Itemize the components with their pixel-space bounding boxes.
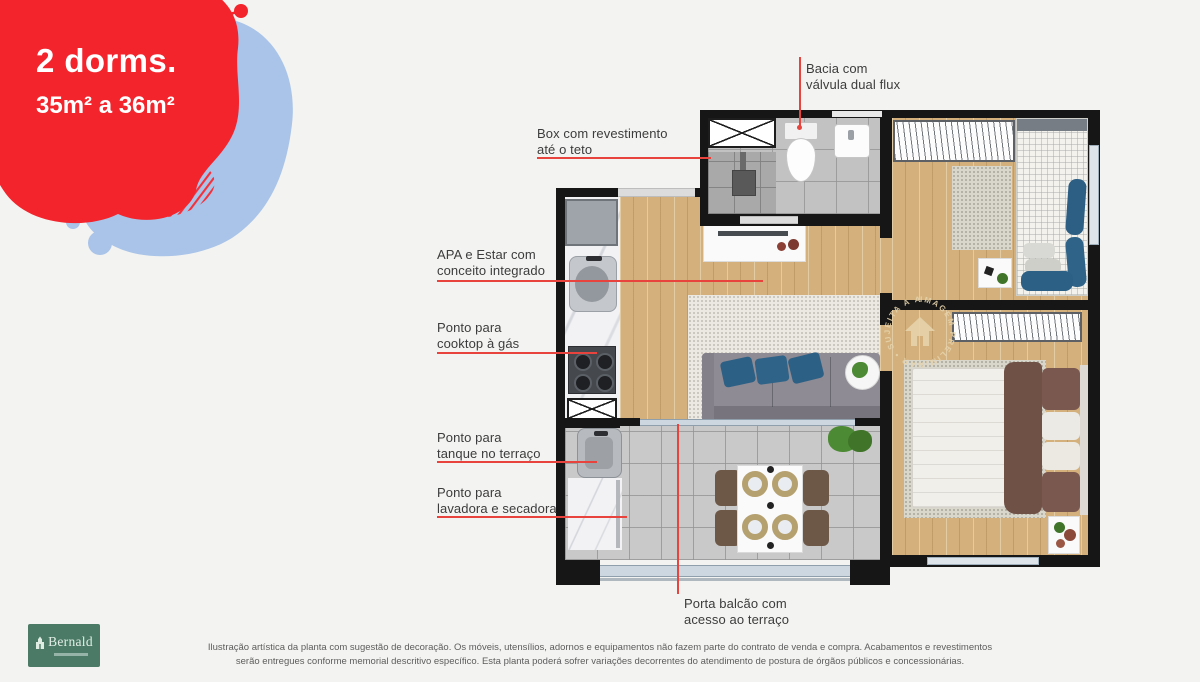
- shaft-box-kitchen: [567, 398, 617, 420]
- decor-vase-icon: [788, 239, 799, 250]
- bed-pillow-icon: [1042, 472, 1080, 512]
- disclaimer-line: serão entregues conforme memorial descri…: [190, 655, 1010, 669]
- callout-cooktop: Ponto para cooktop à gás: [437, 320, 519, 351]
- bedroom1-window: [1089, 145, 1099, 245]
- blob-graphic: [0, 0, 300, 265]
- wall: [695, 188, 702, 197]
- bed-cushion-icon: [1021, 271, 1073, 291]
- place-setting-icon: [772, 514, 798, 540]
- callout-line-tanque: [437, 461, 597, 463]
- floor-plan: IMAGEM PRELIMINAR • SUJEITA A ALTERAÇÕES…: [556, 110, 1100, 585]
- callout-text: lavadora e secadora: [437, 501, 557, 517]
- bed-pillow-icon: [1042, 412, 1080, 440]
- sofa-seam: [830, 357, 831, 407]
- callout-text: Porta balcão com: [684, 596, 789, 612]
- callout-text: tanque no terraço: [437, 446, 541, 462]
- wall: [700, 110, 708, 226]
- burner-icon: [574, 353, 592, 371]
- callout-line-cooktop: [437, 352, 597, 354]
- disclaimer-line: Ilustração artística da planta com suges…: [190, 641, 1010, 655]
- house-icon: [905, 317, 935, 346]
- shaft-box-bathroom: [708, 118, 776, 148]
- bedroom1-bed: [1016, 118, 1088, 296]
- sideboard-shelf: [718, 231, 788, 236]
- tank-faucet-icon: [594, 431, 608, 436]
- preliminary-image-watermark: IMAGEM PRELIMINAR • SUJEITA A ALTERAÇÕES…: [881, 293, 959, 371]
- callout-lavadora: Ponto para lavadora e secadora: [437, 485, 557, 516]
- kitchen-sink-basin: [575, 266, 609, 302]
- bedroom2-wardrobe: [952, 312, 1082, 342]
- place-setting-icon: [742, 514, 768, 540]
- callout-text: acesso ao terraço: [684, 612, 789, 628]
- table-decor-icon: [767, 466, 774, 473]
- bathroom-window: [832, 111, 882, 117]
- plant-icon: [1054, 522, 1065, 533]
- callout-text: cooktop à gás: [437, 336, 519, 352]
- callout-text: até o teto: [537, 142, 668, 158]
- bedroom1-table: [978, 258, 1012, 288]
- balcony-sliding-door: [640, 419, 855, 426]
- kitchen-faucet-icon: [586, 256, 602, 261]
- logo-tagline: [54, 653, 88, 656]
- bernald-logo: Bernald: [28, 624, 100, 667]
- sink-faucet-icon: [848, 130, 854, 140]
- callout-line-porta: [677, 424, 679, 594]
- wall-corner: [850, 560, 890, 585]
- corner-decoration: 2 dorms. 35m² a 36m²: [0, 0, 300, 265]
- dining-table: [737, 465, 803, 553]
- wall: [880, 110, 1100, 118]
- bedroom1-door-opening: [880, 238, 892, 293]
- callout-box: Box com revestimento até o teto: [537, 126, 668, 157]
- sofa-pillow-icon: [720, 356, 757, 388]
- pin-dot: [234, 4, 248, 18]
- callout-text: Bacia com: [806, 61, 900, 77]
- callout-line-bacia: [799, 57, 801, 127]
- logo-text: Bernald: [48, 634, 93, 650]
- page: 2 dorms. 35m² a 36m²: [0, 0, 1200, 682]
- shower-pipe: [740, 152, 746, 170]
- bed-pillow-icon: [1042, 442, 1080, 470]
- bedroom2-nightstand: [1048, 516, 1080, 554]
- washer-front: [616, 480, 620, 548]
- washer-counter: [568, 478, 622, 550]
- place-setting-icon: [772, 471, 798, 497]
- wall: [556, 188, 618, 197]
- blue-dot-large: [88, 231, 112, 255]
- wall: [620, 418, 640, 426]
- bedroom2-bed-duvet: [912, 368, 1008, 508]
- wall: [855, 418, 880, 426]
- table-decor-icon: [767, 502, 774, 509]
- callout-porta: Porta balcão com acesso ao terraço: [684, 596, 789, 627]
- decor-bowl-icon: [1064, 529, 1076, 541]
- callout-line-lavadora: [437, 516, 627, 518]
- callout-dot-bacia: [797, 125, 802, 130]
- decor-vase-icon: [777, 242, 786, 251]
- burner-icon: [574, 374, 592, 392]
- fridge: [565, 199, 618, 246]
- callout-text: Ponto para: [437, 485, 557, 501]
- callout-text: conceito integrado: [437, 263, 545, 279]
- place-setting-icon: [742, 471, 768, 497]
- callout-line-box: [537, 157, 711, 159]
- terrace-door-sill: [600, 578, 850, 581]
- wall: [565, 418, 620, 428]
- table-decor-icon: [767, 542, 774, 549]
- callout-bacia: Bacia com válvula dual flux: [806, 61, 900, 92]
- callout-text: APA e Estar com: [437, 247, 545, 263]
- bed-pillow-icon: [1023, 243, 1055, 258]
- terrace-sliding-door: [600, 565, 850, 577]
- bathroom-door-threshold: [740, 216, 798, 224]
- terrace-plant-icon: [848, 430, 872, 452]
- plant-icon: [997, 273, 1008, 284]
- bedroom1-wardrobe: [893, 120, 1015, 162]
- laundry-tank-sink: [577, 428, 622, 478]
- unit-type-title: 2 dorms.: [36, 42, 177, 80]
- bedroom2-bed-throw: [1004, 362, 1042, 514]
- sofa-pillow-icon: [787, 352, 824, 385]
- sofa-pillow-icon: [754, 355, 789, 385]
- callout-tanque: Ponto para tanque no terraço: [437, 430, 541, 461]
- callout-line-apa: [437, 280, 763, 282]
- callout-apa: APA e Estar com conceito integrado: [437, 247, 545, 278]
- legal-disclaimer: Ilustração artística da planta com suges…: [190, 641, 1010, 668]
- bed-head-cushion: [1017, 119, 1087, 131]
- bedroom2-window: [927, 557, 1039, 565]
- bed-pillow-icon: [1042, 368, 1080, 410]
- building-icon: [35, 636, 45, 649]
- table-object-icon: [984, 266, 994, 276]
- callout-text: Ponto para: [437, 430, 541, 446]
- shower-head-icon: [732, 170, 756, 196]
- dining-chair: [803, 470, 829, 506]
- callout-text: Box com revestimento: [537, 126, 668, 142]
- wall: [556, 188, 565, 568]
- wall-corner: [556, 560, 600, 585]
- sideboard: [703, 222, 806, 262]
- bedroom2-headboard: [1080, 365, 1088, 515]
- unit-area-range: 35m² a 36m²: [36, 92, 175, 120]
- bedroom1-rug: [952, 166, 1012, 250]
- callout-text: válvula dual flux: [806, 77, 900, 93]
- dining-chair: [803, 510, 829, 546]
- sofa-armrest: [702, 353, 714, 422]
- tank-basin: [585, 437, 613, 469]
- callout-text: Ponto para: [437, 320, 519, 336]
- decor-bowl-icon: [1056, 539, 1065, 548]
- burner-icon: [596, 374, 614, 392]
- pin-bump: [197, 7, 215, 25]
- entry-door-threshold: [618, 188, 695, 197]
- burner-icon: [596, 353, 614, 371]
